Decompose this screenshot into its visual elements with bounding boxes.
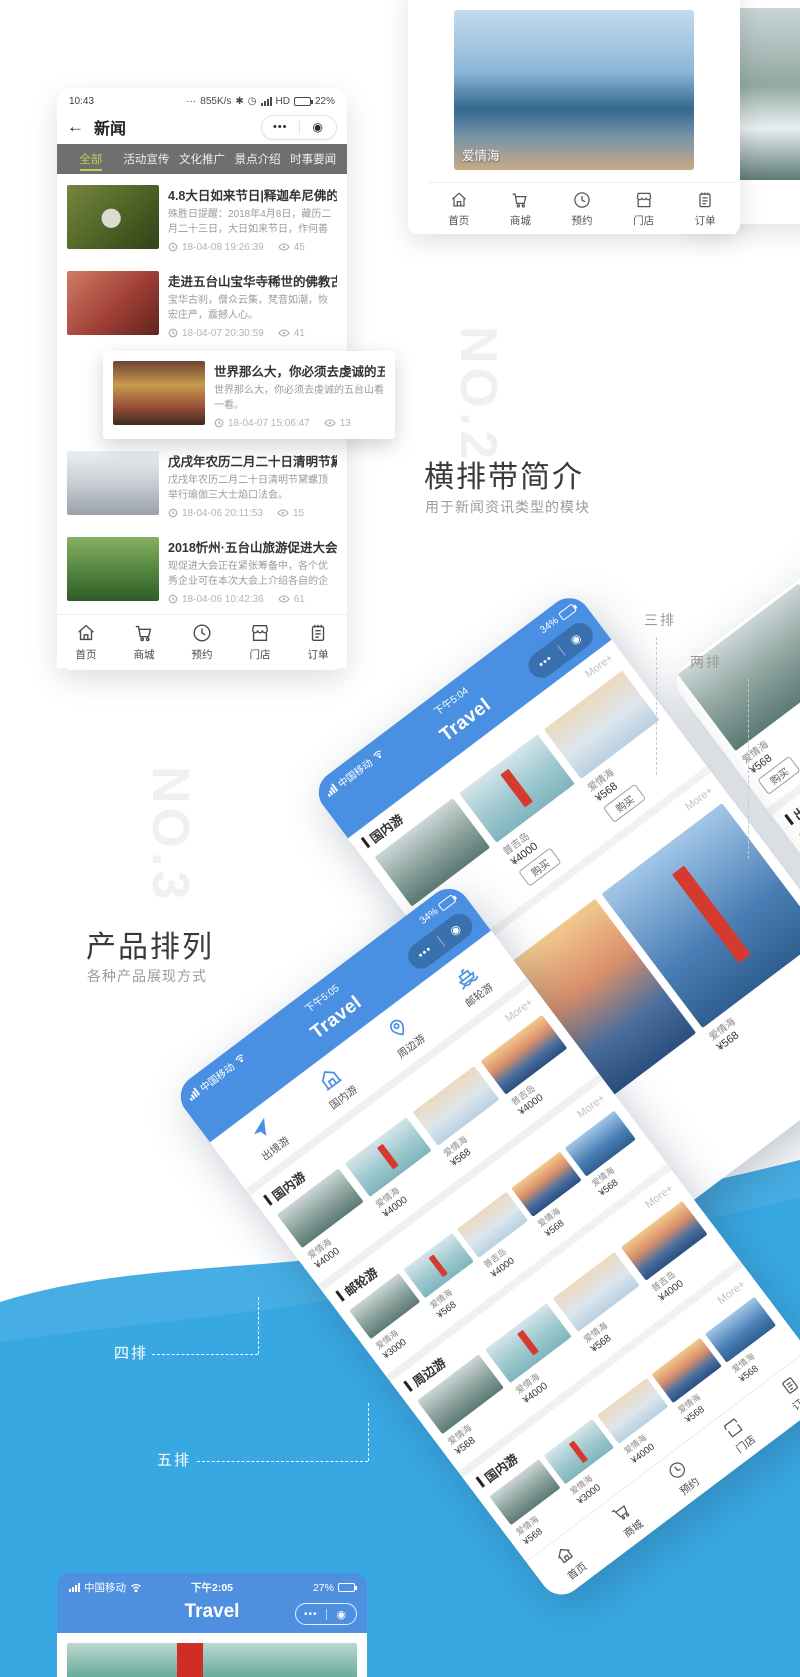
callout-line	[368, 1403, 369, 1461]
news-meta: 18-04-06 20:11:53 15	[168, 507, 337, 519]
news-time: 18-04-06 20:11:53	[182, 508, 263, 519]
news-title: 4.8大日如来节日|释迦牟尼佛的清净报	[168, 185, 337, 204]
news-item[interactable]: 2018忻州·五台山旅游促进大会即将召 现促进大会正在紧张筹备中，各个优秀企业可…	[67, 528, 337, 614]
section3-title: 产品排列	[86, 922, 214, 966]
battery-icon	[294, 97, 311, 106]
tab-label: 门店	[633, 213, 654, 228]
tab-label: 商城	[510, 213, 531, 228]
signal-icon	[261, 97, 272, 106]
callout-line	[197, 1461, 368, 1462]
callout-line	[656, 637, 657, 775]
news-item[interactable]: 世界那么大，你必须去虔诚的五台山看 世界那么大，你必须去虔诚的五台山看一看。 1…	[103, 351, 395, 439]
tab-label: 订单	[308, 647, 329, 662]
close-target-icon[interactable]: ◉	[436, 913, 474, 946]
menu-dots-icon[interactable]: •••	[296, 1609, 326, 1620]
battery-icon	[438, 894, 457, 911]
bottom-tabbar: 首页 商城 预约 门店 订单	[428, 182, 736, 234]
news-views: 61	[294, 594, 305, 605]
lighthouse-photo[interactable]	[67, 1643, 357, 1677]
order-list-icon	[307, 622, 329, 644]
wifi-icon	[371, 748, 385, 762]
wechat-capsule[interactable]: ••• ◉	[261, 115, 337, 140]
tab-orders[interactable]: 订单	[307, 615, 329, 668]
status-time: 10:43	[69, 96, 94, 107]
category-domestic[interactable]: 国内游	[309, 1060, 360, 1113]
callout-line	[258, 1297, 259, 1354]
wechat-capsule[interactable]: ••• ◉	[295, 1603, 357, 1625]
bluetooth-icon: ✱	[235, 96, 243, 107]
clock-icon	[168, 328, 178, 338]
tab-booking[interactable]: 预约	[191, 615, 213, 668]
news-description: 现促进大会正在紧张筹备中，各个优秀企业可在本次大会上介绍各自的企业文化等，大	[168, 559, 337, 589]
news-thumbnail	[67, 451, 159, 515]
signal-icon	[186, 1087, 200, 1101]
battery-icon	[338, 1583, 355, 1592]
wifi-icon	[130, 1583, 142, 1593]
news-time: 18-04-06 10:42:36	[182, 594, 264, 605]
tab-current[interactable]: 时事要闻	[285, 144, 341, 174]
section-bar-icon	[263, 1194, 273, 1205]
category-nearby[interactable]: 周边游	[377, 1009, 428, 1062]
menu-dots-icon[interactable]: •••	[528, 646, 564, 678]
watermark-no2: NO.2	[448, 326, 508, 463]
section-bar-icon	[475, 1476, 485, 1487]
news-views: 45	[294, 242, 305, 253]
section2-title: 横排带简介	[424, 452, 584, 496]
network-speed: 855K/s	[200, 96, 231, 107]
tab-booking[interactable]: 预约	[659, 1450, 706, 1503]
tab-culture[interactable]: 文化推广	[174, 144, 230, 174]
news-meta: 18-04-07 20:30:59 41	[168, 327, 337, 339]
tab-label: 首页	[448, 213, 469, 228]
section-bar-icon	[335, 1290, 345, 1301]
cart-icon	[133, 622, 155, 644]
tab-store[interactable]: 门店	[249, 615, 271, 668]
tab-label: 商城	[134, 647, 155, 662]
tab-activity[interactable]: 活动宣传	[119, 144, 175, 174]
news-views: 41	[294, 328, 305, 339]
battery-percent: 27%	[313, 1582, 334, 1594]
store-icon	[634, 190, 654, 210]
gallery-phone-mockup: 爱情海 首页 商城 预约 门店 订单	[408, 0, 740, 234]
tab-label: 预约	[571, 213, 592, 228]
back-arrow-icon[interactable]: ←	[67, 117, 84, 137]
battery-percent: 34%	[538, 615, 561, 636]
battery-percent: 22%	[315, 96, 335, 107]
news-time: 18-04-07 15:06:47	[228, 418, 310, 429]
tab-orders[interactable]: 订单	[695, 183, 716, 234]
hd-badge: HD	[276, 96, 290, 107]
tab-booking[interactable]: 预约	[571, 183, 592, 234]
news-meta: 18-04-06 10:42:36 61	[168, 593, 337, 605]
menu-dots-icon[interactable]: •••	[262, 121, 299, 133]
photo-label: 爱情海	[462, 145, 500, 164]
store-icon	[249, 622, 271, 644]
bottom-tabbar: 首页 商城 预约 门店 订单	[57, 614, 347, 668]
tab-label: 首页	[76, 647, 97, 662]
news-time: 18-04-08 19:26:39	[182, 242, 264, 253]
tab-orders[interactable]: 订单	[771, 1365, 800, 1418]
news-thumbnail	[67, 185, 159, 249]
category-tabs: 全部 活动宣传 文化推广 景点介绍 时事要闻	[57, 144, 347, 174]
callout-two-columns: 两排	[690, 652, 722, 672]
tab-store[interactable]: 门店	[715, 1408, 762, 1461]
section-bar-icon	[361, 837, 371, 848]
clock-icon	[168, 242, 178, 252]
tab-store[interactable]: 门店	[633, 183, 654, 234]
destination-photo[interactable]: 爱情海	[454, 10, 694, 170]
menu-dots-icon[interactable]: •••	[407, 937, 443, 969]
news-views: 15	[293, 508, 304, 519]
signal-icon	[69, 1583, 80, 1592]
news-title: 戊戌年农历二月二十日清明节黛螺顶举	[168, 451, 337, 470]
news-thumbnail	[67, 271, 159, 335]
tab-mall[interactable]: 商城	[133, 615, 155, 668]
callout-four-columns: 四排	[114, 1342, 148, 1363]
tab-mall[interactable]: 商城	[602, 1493, 649, 1546]
tab-scenic[interactable]: 景点介绍	[230, 144, 286, 174]
bottom-travel-phone: 中国移动 下午2:05 27% Travel ••• ◉	[57, 1573, 367, 1677]
section-bar-icon	[784, 814, 794, 825]
home-icon	[449, 190, 469, 210]
wifi-icon	[233, 1052, 247, 1066]
watermark-no3: NO.3	[140, 766, 200, 903]
battery-percent: 34%	[418, 906, 441, 927]
design-canvas: NO.2 NO.3 横排带简介 用于新闻资讯类型的模块 产品排列 各种产品展现方…	[0, 0, 800, 1677]
home-icon	[75, 622, 97, 644]
news-description: 世界那么大，你必须去虔诚的五台山看一看。	[214, 383, 385, 413]
close-target-icon[interactable]: ◉	[557, 623, 595, 656]
battery-icon	[558, 603, 577, 620]
news-title: 世界那么大，你必须去虔诚的五台山看	[214, 361, 385, 380]
eye-icon	[278, 327, 290, 339]
news-description: 殊胜日提醒：2018年4月8日，藏历二月二十三日，大日如来节日，作何善恶成亿倍!	[168, 207, 337, 237]
tab-all[interactable]: 全部	[63, 144, 119, 174]
callout-three-columns: 三排	[644, 610, 676, 630]
nav-bar: ← 新闻 ••• ◉	[57, 110, 347, 144]
tab-label: 预约	[192, 647, 213, 662]
app-body	[57, 1633, 367, 1677]
section3-subtitle: 各种产品展现方式	[87, 966, 207, 986]
status-bar: 10:43 ··· 855K/s ✱ ◷ HD 22%	[57, 88, 347, 110]
news-list: 4.8大日如来节日|释迦牟尼佛的清净报 殊胜日提醒：2018年4月8日，藏历二月…	[57, 174, 347, 614]
carrier: 中国移动	[84, 1580, 126, 1595]
news-title: 走进五台山宝华寺稀世的佛教古建筑	[168, 271, 337, 290]
news-meta: 18-04-07 15:06:47 13	[214, 417, 385, 429]
alarm-icon: ◷	[248, 96, 257, 107]
eye-icon	[278, 241, 290, 253]
eye-icon	[277, 507, 289, 519]
news-title: 2018忻州·五台山旅游促进大会即将召	[168, 537, 337, 556]
news-phone-mockup: 10:43 ··· 855K/s ✱ ◷ HD 22% ← 新闻 ••• ◉ 全…	[57, 88, 347, 670]
page-title: 新闻	[94, 115, 261, 139]
signal-icon	[324, 783, 338, 797]
close-target-icon[interactable]: ◉	[300, 120, 337, 134]
status-bar: 中国移动 下午2:05 27%	[69, 1580, 355, 1595]
callout-five-columns: 五排	[157, 1449, 191, 1470]
tab-home[interactable]: 首页	[546, 1535, 593, 1588]
clock-icon	[191, 622, 213, 644]
news-item[interactable]: 4.8大日如来节日|释迦牟尼佛的清净报 殊胜日提醒：2018年4月8日，藏历二月…	[67, 176, 337, 262]
news-thumbnail	[113, 361, 205, 425]
clock-icon	[168, 508, 178, 518]
cart-icon	[510, 190, 530, 210]
eye-icon	[324, 417, 336, 429]
category-outbound[interactable]: 出境游	[241, 1111, 292, 1164]
tab-home[interactable]: 首页	[448, 183, 469, 234]
callout-line	[152, 1354, 258, 1355]
category-cruise[interactable]: 邮轮游	[445, 957, 496, 1010]
tab-mall[interactable]: 商城	[510, 183, 531, 234]
callout-line	[748, 679, 749, 859]
tab-label: 订单	[695, 213, 716, 228]
news-item[interactable]: 戊戌年农历二月二十日清明节黛螺顶举 戊戌年农历二月二十日清明节黛螺顶举行瑜伽三大…	[67, 442, 337, 528]
app-header: 中国移动 下午2:05 27% Travel ••• ◉	[57, 1573, 367, 1633]
news-thumbnail	[67, 537, 159, 601]
clock-icon	[168, 594, 178, 604]
news-meta: 18-04-08 19:26:39 45	[168, 241, 337, 253]
news-item[interactable]: 走进五台山宝华寺稀世的佛教古建筑 宝华古刹，僧众云集，梵音如潮，恢宏庄严，震撼人…	[67, 262, 337, 348]
close-target-icon[interactable]: ◉	[327, 1608, 357, 1621]
eye-icon	[278, 593, 290, 605]
section2-subtitle: 用于新闻资讯类型的模块	[425, 497, 590, 517]
status-time: 下午2:05	[164, 1580, 259, 1595]
section-bar-icon	[403, 1380, 413, 1391]
news-description: 宝华古刹，僧众云集，梵音如潮，恢宏庄严，震撼人心。	[168, 293, 337, 323]
more-dots-icon: ···	[186, 96, 196, 107]
tab-home[interactable]: 首页	[75, 615, 97, 668]
news-time: 18-04-07 20:30:59	[182, 328, 264, 339]
tab-label: 门店	[250, 647, 271, 662]
news-views: 13	[340, 418, 351, 429]
news-description: 戊戌年农历二月二十日清明节黛螺顶举行瑜伽三大士焰口法会。	[168, 473, 337, 503]
clock-icon	[572, 190, 592, 210]
order-list-icon	[695, 190, 715, 210]
clock-icon	[214, 418, 224, 428]
